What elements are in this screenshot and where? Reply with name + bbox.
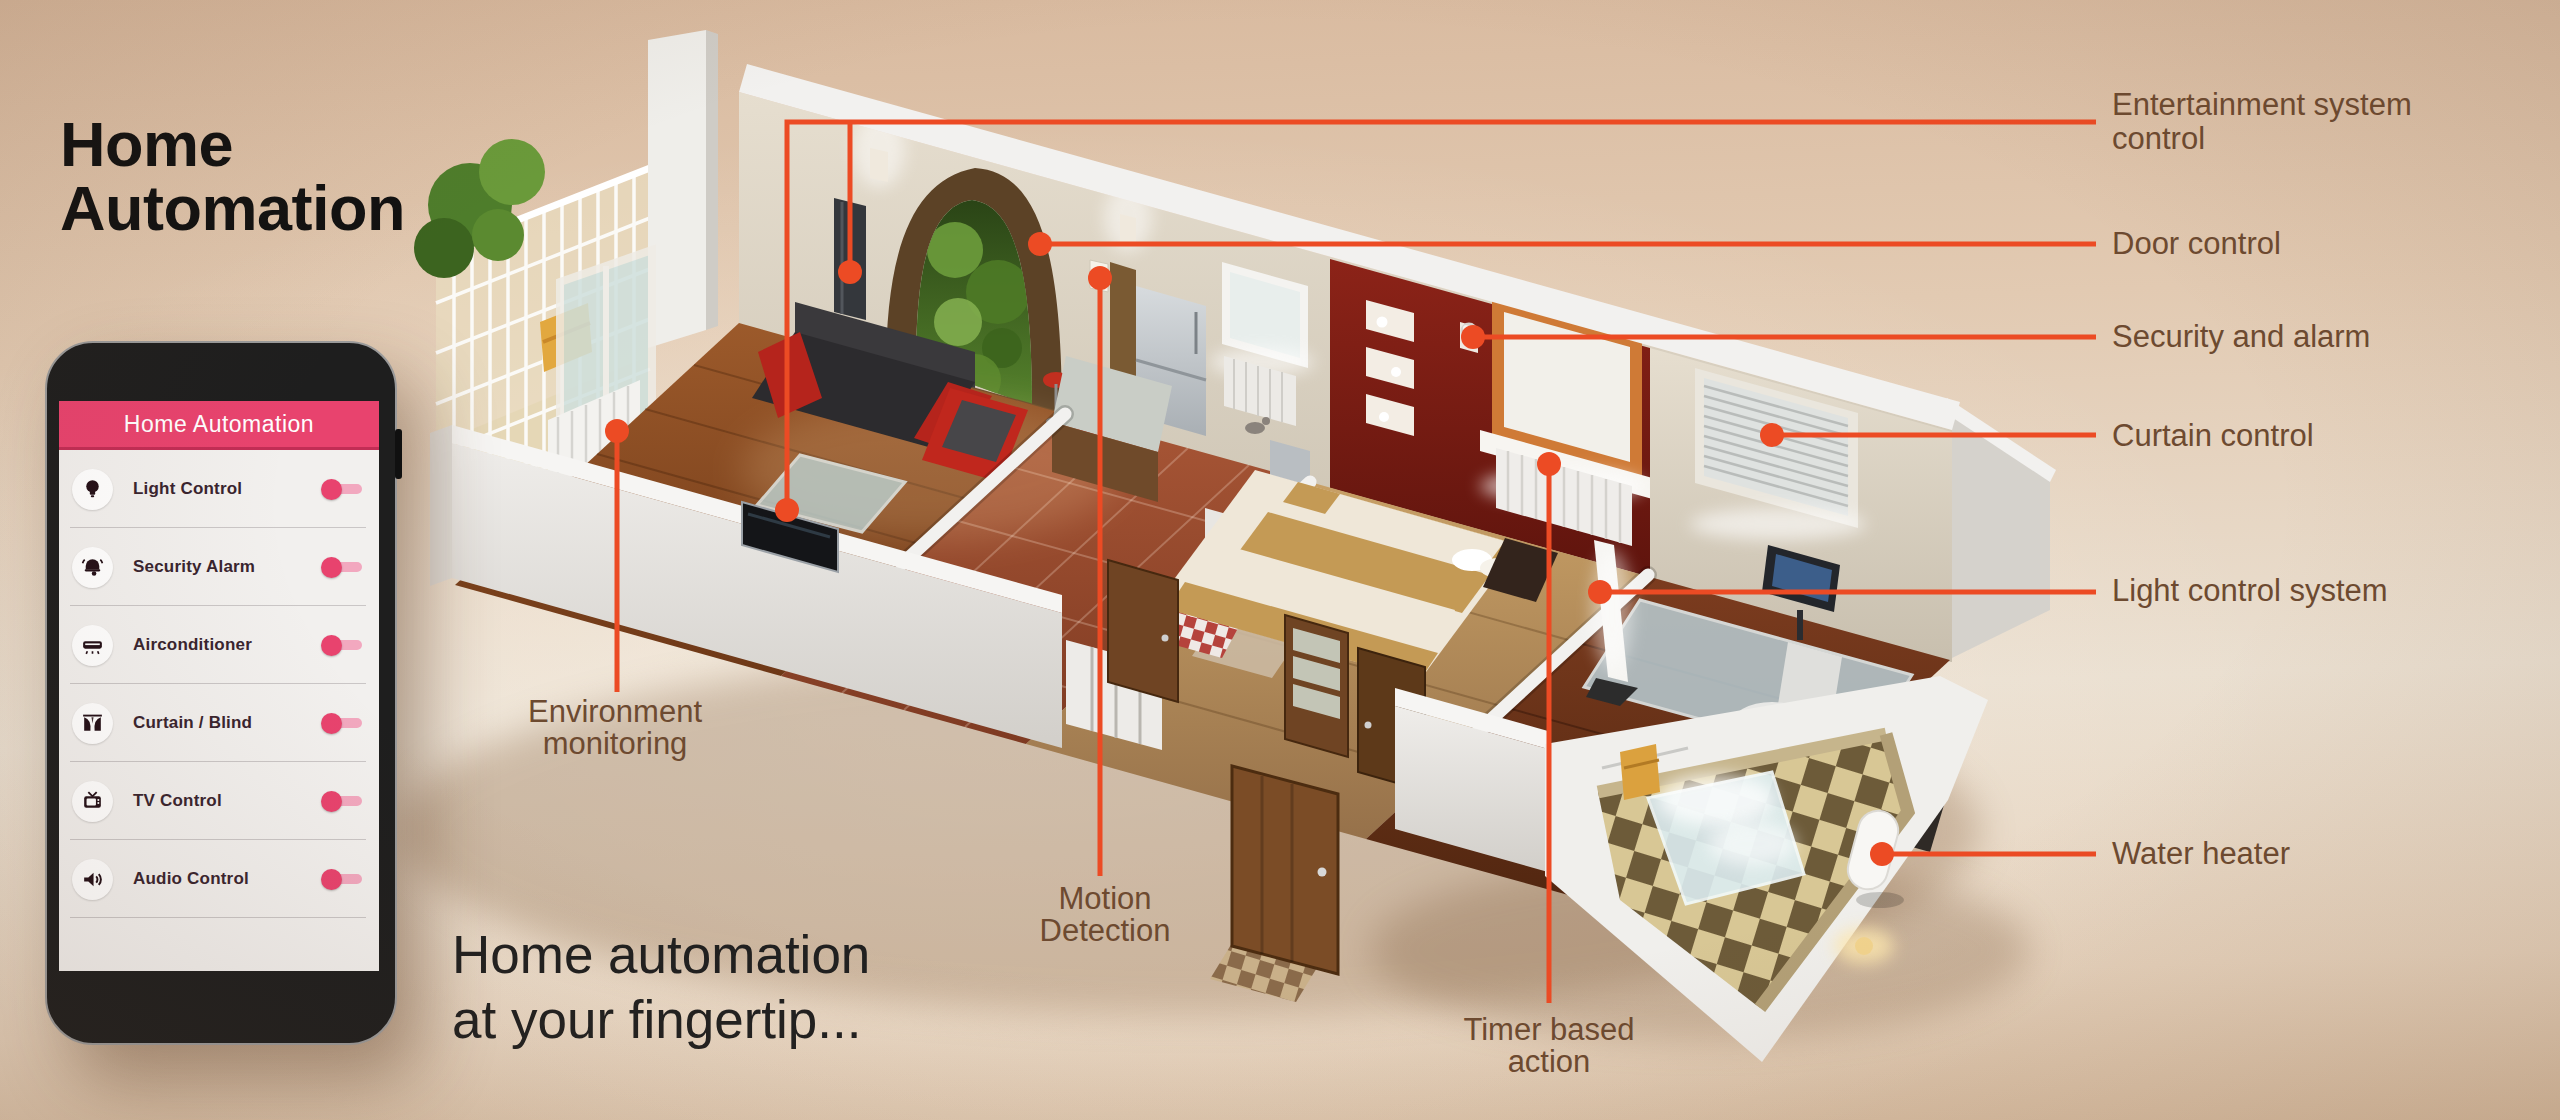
control-list: Light Control Security Alarm <box>59 450 379 918</box>
callout-line: Entertainment system <box>2112 88 2412 122</box>
tagline-line: at your fingertip... <box>452 987 870 1052</box>
security-toggle[interactable] <box>323 562 362 572</box>
light-toggle[interactable] <box>323 484 362 494</box>
aircon-toggle[interactable] <box>323 640 362 650</box>
callout-line: Curtain control <box>2112 419 2314 453</box>
toggle-knob <box>321 869 342 890</box>
callout-line: Motion <box>1040 883 1171 915</box>
callout-line: Security and alarm <box>2112 320 2370 354</box>
callout-line: monitoring <box>528 728 702 760</box>
app-header-title: Home Automation <box>124 411 314 438</box>
wall-niches <box>1366 300 1414 436</box>
callout-line: Detection <box>1040 915 1171 947</box>
alarm-bell-icon <box>72 547 113 588</box>
phone-screen: Home Automation Light Control <box>59 401 379 971</box>
smartphone-mockup: Home Automation Light Control <box>45 341 397 1045</box>
callout-environment: Environment monitoring <box>528 696 702 760</box>
phone-power-button <box>395 429 402 479</box>
control-row-aircon: Airconditioner <box>59 606 379 684</box>
tagline-line: Home automation <box>452 922 870 987</box>
callout-curtain: Curtain control <box>2112 419 2314 453</box>
control-row-light: Light Control <box>59 450 379 528</box>
toggle-knob <box>321 635 342 656</box>
callout-water-heater: Water heater <box>2112 837 2290 871</box>
tv-icon <box>72 781 113 822</box>
callout-line: Timer based <box>1463 1014 1634 1046</box>
toggle-knob <box>321 791 342 812</box>
callout-timer: Timer based action <box>1463 1014 1634 1078</box>
callout-motion: Motion Detection <box>1040 883 1171 947</box>
home-automation-infographic: { "title": { "line1": "Home", "line2": "… <box>0 0 2560 1120</box>
callout-line: Water heater <box>2112 837 2290 871</box>
control-label: Curtain / Blind <box>133 713 252 733</box>
tv-toggle[interactable] <box>323 796 362 806</box>
tagline: Home automation at your fingertip... <box>452 922 870 1052</box>
callout-line: Light control system <box>2112 574 2388 608</box>
callout-line: Environment <box>528 696 702 728</box>
page-title-line: Automation <box>60 176 405 240</box>
control-row-tv: TV Control <box>59 762 379 840</box>
speaker-icon <box>72 859 113 900</box>
toggle-knob <box>321 557 342 578</box>
control-row-security: Security Alarm <box>59 528 379 606</box>
control-label: Airconditioner <box>133 635 252 655</box>
callout-line: action <box>1463 1046 1634 1078</box>
wall-sconce <box>1120 214 1136 246</box>
control-label: TV Control <box>133 791 222 811</box>
control-row-audio: Audio Control <box>59 840 379 918</box>
tall-wall-panel <box>648 30 706 348</box>
bathroom-light <box>1855 937 1873 955</box>
curtain-toggle[interactable] <box>323 718 362 728</box>
bath-towel <box>1620 744 1660 800</box>
callout-security: Security and alarm <box>2112 320 2370 354</box>
control-label: Audio Control <box>133 869 249 889</box>
cat <box>1245 422 1265 434</box>
audio-toggle[interactable] <box>323 874 362 884</box>
page-title-line: Home <box>60 112 405 176</box>
light-bulb-icon <box>72 469 113 510</box>
control-label: Security Alarm <box>133 557 255 577</box>
curtain-icon <box>72 703 113 744</box>
page-title: Home Automation <box>60 112 405 240</box>
app-header: Home Automation <box>59 401 379 450</box>
callout-entertainment: Entertainment system control <box>2112 88 2412 156</box>
wall-sconce <box>870 148 888 182</box>
toggle-knob <box>321 713 342 734</box>
toggle-knob <box>321 479 342 500</box>
callout-door: Door control <box>2112 227 2281 261</box>
callout-line: control <box>2112 122 2412 156</box>
control-label: Light Control <box>133 479 242 499</box>
callout-light: Light control system <box>2112 574 2388 608</box>
control-row-curtain: Curtain / Blind <box>59 684 379 762</box>
door <box>1108 560 1178 702</box>
air-conditioner-icon <box>72 625 113 666</box>
callout-line: Door control <box>2112 227 2281 261</box>
